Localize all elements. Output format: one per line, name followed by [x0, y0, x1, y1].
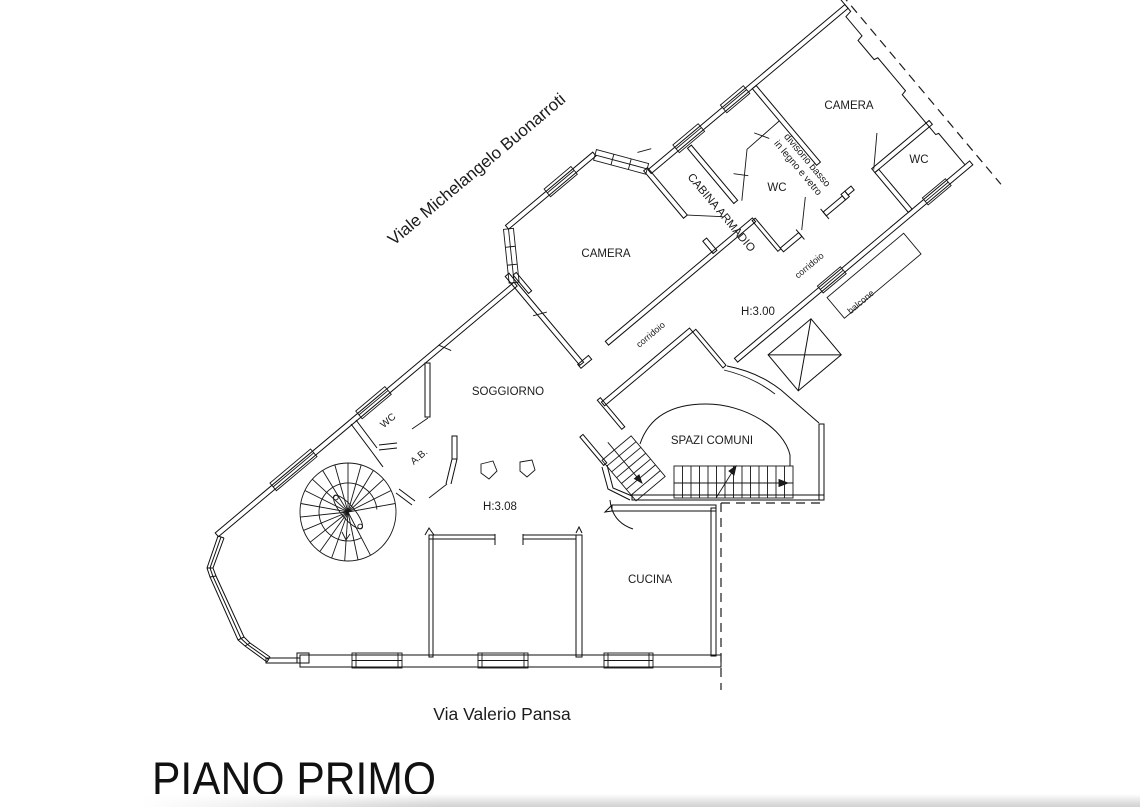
svg-text:H:3.08: H:3.08	[483, 501, 517, 513]
svg-text:H:3.00: H:3.00	[741, 306, 775, 318]
svg-text:WC: WC	[767, 182, 786, 194]
svg-text:CUCINA: CUCINA	[628, 574, 672, 586]
svg-text:CAMERA: CAMERA	[824, 100, 874, 112]
svg-text:WC: WC	[909, 154, 928, 166]
svg-text:SPAZI COMUNI: SPAZI COMUNI	[671, 435, 753, 447]
svg-text:SOGGIORNO: SOGGIORNO	[472, 386, 544, 398]
svg-text:CAMERA: CAMERA	[581, 248, 631, 260]
svg-text:Via Valerio Pansa: Via Valerio Pansa	[433, 704, 571, 724]
